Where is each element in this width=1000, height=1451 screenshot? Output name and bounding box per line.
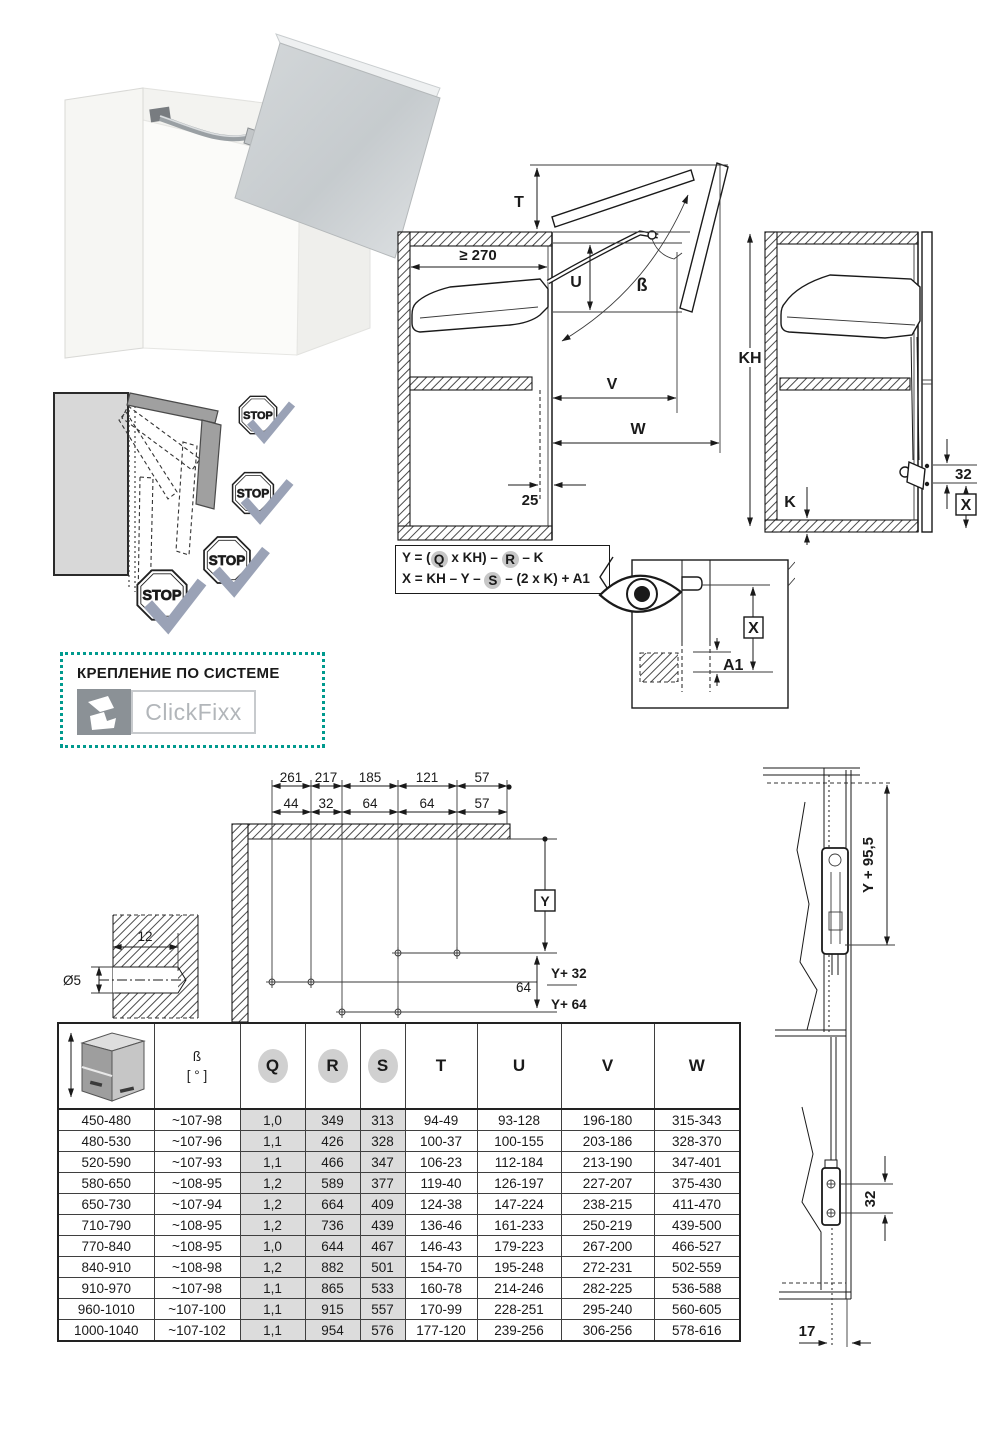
table-cell: 580-650 <box>58 1173 154 1194</box>
table-cell: 560-605 <box>654 1299 740 1320</box>
table-cell: ~107-100 <box>154 1299 240 1320</box>
chain-dim: 57 <box>474 770 489 785</box>
table-cell: 650-730 <box>58 1194 154 1215</box>
table-cell: 644 <box>305 1236 360 1257</box>
shelf <box>410 377 532 390</box>
table-cell: 267-200 <box>561 1236 654 1257</box>
table-cell: 466-527 <box>654 1236 740 1257</box>
table-cell: 119-40 <box>405 1173 477 1194</box>
header-u: U <box>477 1023 561 1109</box>
table-cell: 203-186 <box>561 1131 654 1152</box>
header-q: Q <box>240 1023 305 1109</box>
table-row: 650-730~107-941,2664409124-38147-224238-… <box>58 1194 740 1215</box>
dim-label-t: T <box>514 194 524 211</box>
table-cell: ~107-96 <box>154 1131 240 1152</box>
table-row: 480-530~107-961,1426328100-37100-155203-… <box>58 1131 740 1152</box>
table-cell: 349 <box>305 1109 360 1131</box>
table-row: 710-790~108-951,2736439136-46161-233250-… <box>58 1215 740 1236</box>
table-row: 450-480~107-981,034931394-4993-128196-18… <box>58 1109 740 1131</box>
table-row: 960-1010~107-1001,1915557170-99228-25129… <box>58 1299 740 1320</box>
table-cell: ~107-94 <box>154 1194 240 1215</box>
door-flap-lower <box>680 163 728 312</box>
dim-label-kh: KH <box>738 350 761 367</box>
table-cell: 910-970 <box>58 1278 154 1299</box>
formula-line-x: X = KH – Y – S – (2 x K) + A1 <box>402 568 603 589</box>
table-body: 450-480~107-981,034931394-4993-128196-18… <box>58 1109 740 1341</box>
dim-label-u: U <box>570 274 582 291</box>
table-cell: 112-184 <box>477 1152 561 1173</box>
table-cell: 146-43 <box>405 1236 477 1257</box>
table-cell: 882 <box>305 1257 360 1278</box>
table-cell: 213-190 <box>561 1152 654 1173</box>
drill-point <box>336 1006 348 1018</box>
table-cell: 306-256 <box>561 1320 654 1342</box>
clickfixx-brand: ClickFixx <box>145 699 242 726</box>
dim-label-depth: 12 <box>137 929 152 944</box>
table-cell: 954 <box>305 1320 360 1342</box>
table-cell: 160-78 <box>405 1278 477 1299</box>
table-cell: 136-46 <box>405 1215 477 1236</box>
table-cell: 179-223 <box>477 1236 561 1257</box>
table-cell: 227-207 <box>561 1173 654 1194</box>
r-highlight: R <box>502 551 519 568</box>
table-cell: 1,2 <box>240 1257 305 1278</box>
dim-label-32: 32 <box>955 466 972 483</box>
header-t: T <box>405 1023 477 1109</box>
mounting-detail-view: X A1 <box>595 530 795 715</box>
table-cell: 1,1 <box>240 1299 305 1320</box>
table-cell: 375-430 <box>654 1173 740 1194</box>
table-cell: 126-197 <box>477 1173 561 1194</box>
table-cell: 536-588 <box>654 1278 740 1299</box>
dim-label-w: W <box>630 421 646 438</box>
table-cell: 502-559 <box>654 1257 740 1278</box>
drill-point <box>305 976 317 988</box>
table-row: 840-910~108-981,2882501154-70195-248272-… <box>58 1257 740 1278</box>
header-w: W <box>654 1023 740 1109</box>
table-cell: 347-401 <box>654 1152 740 1173</box>
table-cell: 106-23 <box>405 1152 477 1173</box>
drill-point <box>451 947 463 959</box>
s-highlight: S <box>484 572 501 589</box>
dim-label-diameter: Ø5 <box>63 973 81 988</box>
table-cell: 1,1 <box>240 1152 305 1173</box>
table-cell: 589 <box>305 1173 360 1194</box>
dim-label-64: 64 <box>516 980 532 995</box>
drill-point <box>392 947 404 959</box>
door-flap-upper <box>552 170 694 227</box>
table-cell: 170-99 <box>405 1299 477 1320</box>
table-row: 520-590~107-931,1466347106-23112-184213-… <box>58 1152 740 1173</box>
side-mounting-section: Y + 95,5 32 17 <box>755 762 995 1348</box>
header-v: V <box>561 1023 654 1109</box>
table-cell: 238-215 <box>561 1194 654 1215</box>
table-row: 1000-1040~107-1021,1954576177-120239-256… <box>58 1320 740 1342</box>
table-row: 910-970~107-981,1865533160-78214-246282-… <box>58 1278 740 1299</box>
table-cell: 557 <box>360 1299 405 1320</box>
dim-label-a1: A1 <box>723 657 744 674</box>
dim-label-x: X <box>748 620 759 637</box>
drill-hole-detail: 12 Ø5 <box>55 885 230 1030</box>
q-highlight: Q <box>431 551 448 568</box>
table-cell: 315-343 <box>654 1109 740 1131</box>
chain-dim: 217 <box>315 770 338 785</box>
clickfixx-title: КРЕПЛЕНИЕ ПО СИСТЕМЕ <box>77 665 280 682</box>
table-cell: 467 <box>360 1236 405 1257</box>
chain-dim: 32 <box>318 796 333 811</box>
table-cell: 1000-1040 <box>58 1320 154 1342</box>
table-cell: 328 <box>360 1131 405 1152</box>
stop-stages-diagram <box>40 382 340 652</box>
table-cell: 533 <box>360 1278 405 1299</box>
table-cell: 94-49 <box>405 1109 477 1131</box>
table-cell: 147-224 <box>477 1194 561 1215</box>
table-cell: 426 <box>305 1131 360 1152</box>
header-s: S <box>360 1023 405 1109</box>
clickfixx-panel: КРЕПЛЕНИЕ ПО СИСТЕМЕ ClickFixx <box>60 652 325 748</box>
table-cell: 282-225 <box>561 1278 654 1299</box>
shelf <box>780 378 910 390</box>
open-section-diagram: T ≥ 270 U ß V W 25 <box>390 155 742 555</box>
table-cell: 100-37 <box>405 1131 477 1152</box>
dim-label-beta: ß <box>637 275 648 295</box>
clickfixx-brand-box: ClickFixx <box>131 690 256 734</box>
door-position-open <box>127 393 218 423</box>
table-cell: 466 <box>305 1152 360 1173</box>
table-cell: ~108-98 <box>154 1257 240 1278</box>
table-cell: 1,0 <box>240 1236 305 1257</box>
formula-box: Y = (Q x KH) – R – K X = KH – Y – S – (2… <box>395 545 610 594</box>
closed-section-diagram: KH 32 X K <box>735 225 990 547</box>
table-cell: 409 <box>360 1194 405 1215</box>
table-cell: 960-1010 <box>58 1299 154 1320</box>
door-position-mid <box>196 420 221 509</box>
table-cell: 295-240 <box>561 1299 654 1320</box>
table-cell: 161-233 <box>477 1215 561 1236</box>
dim-label-v: V <box>607 376 618 393</box>
table-cell: 770-840 <box>58 1236 154 1257</box>
dim-label-min-depth: ≥ 270 <box>459 247 496 264</box>
table-cell: 450-480 <box>58 1109 154 1131</box>
table-header-row: ß [ ° ] Q R S T U V W <box>58 1023 740 1109</box>
chain-dim: 185 <box>359 770 382 785</box>
table-cell: 195-248 <box>477 1257 561 1278</box>
dim-label-front: 17 <box>799 1323 816 1340</box>
table-cell: 154-70 <box>405 1257 477 1278</box>
table-cell: 520-590 <box>58 1152 154 1173</box>
dim-label-holes: 32 <box>862 1191 879 1208</box>
table-cell: 100-155 <box>477 1131 561 1152</box>
table-cell: 177-120 <box>405 1320 477 1342</box>
table-cell: 1,1 <box>240 1131 305 1152</box>
header-r: R <box>305 1023 360 1109</box>
table-cell: 480-530 <box>58 1131 154 1152</box>
table-cell: 736 <box>305 1215 360 1236</box>
chain-dim: 121 <box>416 770 439 785</box>
cabinet-side <box>54 393 128 575</box>
table-cell: 578-616 <box>654 1320 740 1342</box>
table-cell: ~108-95 <box>154 1236 240 1257</box>
dim-label-x: X <box>961 497 972 514</box>
chain-dim: 57 <box>474 796 489 811</box>
lift-mechanism <box>412 279 548 332</box>
table-cell: 347 <box>360 1152 405 1173</box>
table-cell: 328-370 <box>654 1131 740 1152</box>
table-cell: 1,2 <box>240 1215 305 1236</box>
table-cell: 710-790 <box>58 1215 154 1236</box>
table-cell: 124-38 <box>405 1194 477 1215</box>
table-cell: 840-910 <box>58 1257 154 1278</box>
dim-label-y: Y <box>540 893 550 909</box>
table-cell: 250-219 <box>561 1215 654 1236</box>
table-cell: 664 <box>305 1194 360 1215</box>
dim-label-ydim: Y + 95,5 <box>860 837 877 893</box>
table-cell: 439-500 <box>654 1215 740 1236</box>
drill-point <box>266 976 278 988</box>
table-cell: 272-231 <box>561 1257 654 1278</box>
table-cell: 377 <box>360 1173 405 1194</box>
dim-label-y64: Y+ 64 <box>551 997 587 1012</box>
table-cell: 214-246 <box>477 1278 561 1299</box>
spec-table: ß [ ° ] Q R S T U V W 450-480~107-981,03… <box>57 1022 741 1342</box>
table-cell: 915 <box>305 1299 360 1320</box>
table-row: 580-650~108-951,2589377119-40126-197227-… <box>58 1173 740 1194</box>
drill-point <box>392 1006 404 1018</box>
table-cell: 1,0 <box>240 1109 305 1131</box>
table-cell: ~107-93 <box>154 1152 240 1173</box>
header-height-icon <box>58 1023 154 1109</box>
table-cell: 411-470 <box>654 1194 740 1215</box>
table-cell: ~107-102 <box>154 1320 240 1342</box>
dim-label-offset: 25 <box>522 492 539 509</box>
cabinet-height-icon <box>62 1025 150 1105</box>
table-cell: 439 <box>360 1215 405 1236</box>
mounting-plate <box>822 848 848 954</box>
chain-dim: 44 <box>283 796 299 811</box>
document-page: STOP <box>0 0 1000 1451</box>
table-cell: 93-128 <box>477 1109 561 1131</box>
header-beta: ß [ ° ] <box>154 1023 240 1109</box>
table-cell: 196-180 <box>561 1109 654 1131</box>
table-cell: 1,2 <box>240 1194 305 1215</box>
table-cell: 313 <box>360 1109 405 1131</box>
formula-line-y: Y = (Q x KH) – R – K <box>402 547 603 568</box>
table-cell: 239-256 <box>477 1320 561 1342</box>
table-cell: ~108-95 <box>154 1215 240 1236</box>
clickfixx-logo-icon <box>77 689 131 735</box>
dim-label-y32: Y+ 32 <box>551 966 587 981</box>
dowel-pin <box>682 577 702 590</box>
shelf-position <box>640 653 678 682</box>
table-cell: 1,1 <box>240 1278 305 1299</box>
table-cell: 1,1 <box>240 1320 305 1342</box>
table-row: 770-840~108-951,0644467146-43179-223267-… <box>58 1236 740 1257</box>
table-cell: ~107-98 <box>154 1278 240 1299</box>
table-cell: 228-251 <box>477 1299 561 1320</box>
table-cell: 576 <box>360 1320 405 1342</box>
chain-dim: 64 <box>419 796 435 811</box>
dim-label-k: K <box>784 494 796 511</box>
table-cell: ~108-95 <box>154 1173 240 1194</box>
table-cell: 865 <box>305 1278 360 1299</box>
table-cell: 501 <box>360 1257 405 1278</box>
lift-mechanism <box>781 275 920 338</box>
chain-dim: 64 <box>362 796 378 811</box>
table-cell: ~107-98 <box>154 1109 240 1131</box>
drilling-pattern-diagram: 261 217 185 121 57 44 32 64 64 57 <box>225 760 597 1024</box>
chain-dim: 261 <box>280 770 303 785</box>
table-cell: 1,2 <box>240 1173 305 1194</box>
